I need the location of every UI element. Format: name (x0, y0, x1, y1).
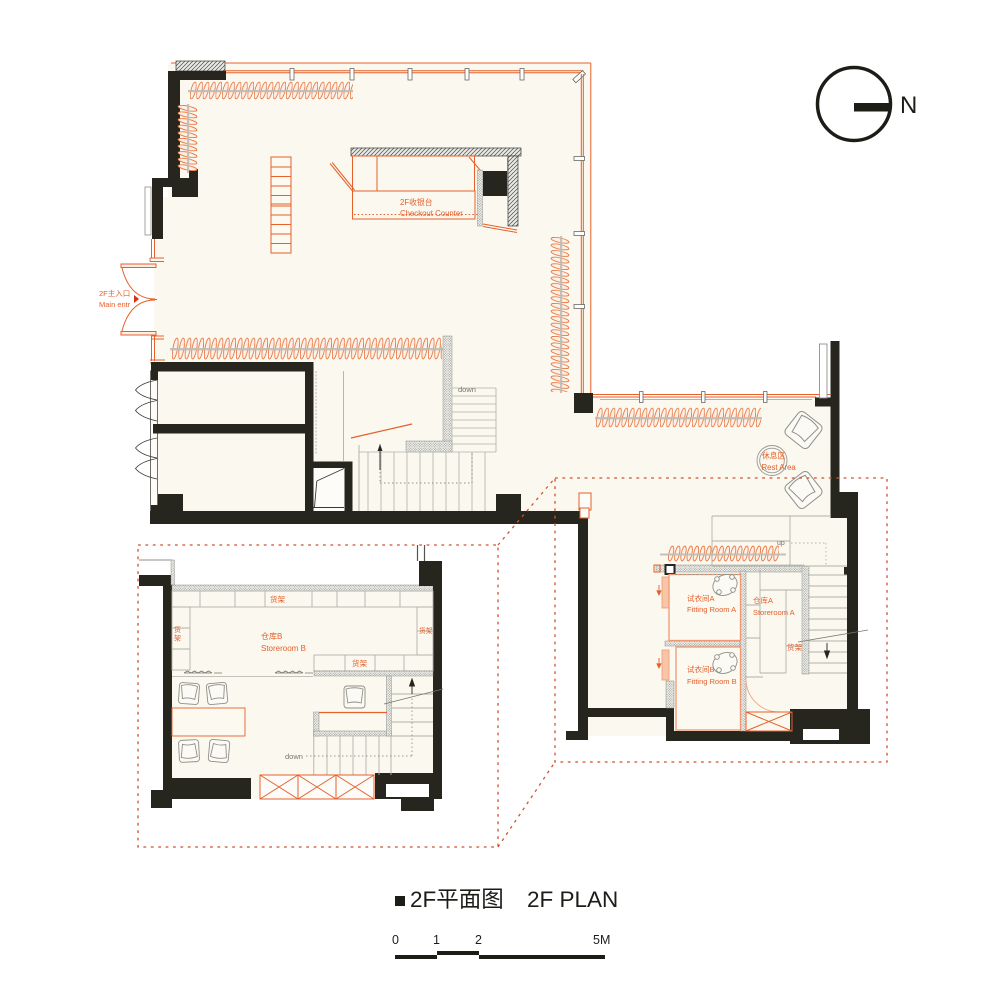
svg-text:2F PLAN: 2F PLAN (527, 887, 618, 912)
svg-text:2F收银台: 2F收银台 (400, 197, 433, 207)
svg-text:5M: 5M (593, 933, 610, 947)
svg-text:Storeroom B: Storeroom B (261, 644, 306, 653)
svg-text:休息区: 休息区 (762, 451, 786, 461)
svg-text:Storeroom A: Storeroom A (753, 608, 795, 617)
svg-text:up: up (777, 540, 785, 547)
svg-text:N: N (900, 92, 917, 119)
svg-text:down: down (458, 385, 476, 394)
svg-text:Fitting Room A: Fitting Room A (687, 605, 736, 614)
svg-text:货架: 货架 (787, 642, 802, 652)
svg-text:仓库B: 仓库B (261, 631, 282, 641)
svg-text:2F主入口: 2F主入口 (99, 288, 130, 298)
svg-text:货: 货 (174, 625, 181, 634)
svg-text:1: 1 (433, 933, 440, 947)
svg-text:仓库A: 仓库A (753, 595, 773, 605)
svg-text:Rest Area: Rest Area (762, 463, 797, 472)
svg-text:Main entr: Main entr (99, 300, 131, 309)
svg-text:2F平面图: 2F平面图 (410, 887, 504, 912)
svg-text:0: 0 (392, 933, 399, 947)
svg-text:2: 2 (475, 933, 482, 947)
svg-text:架: 架 (174, 635, 181, 643)
svg-text:down: down (285, 752, 303, 761)
svg-text:货架: 货架 (419, 626, 433, 635)
svg-text:货架: 货架 (270, 594, 285, 604)
svg-text:Fitting Room B: Fitting Room B (687, 677, 737, 686)
svg-text:试衣间A: 试衣间A (687, 593, 715, 603)
svg-text:Checkout Counter: Checkout Counter (400, 209, 463, 218)
svg-text:货架: 货架 (352, 658, 367, 668)
svg-text:试衣间B: 试衣间B (687, 664, 715, 674)
